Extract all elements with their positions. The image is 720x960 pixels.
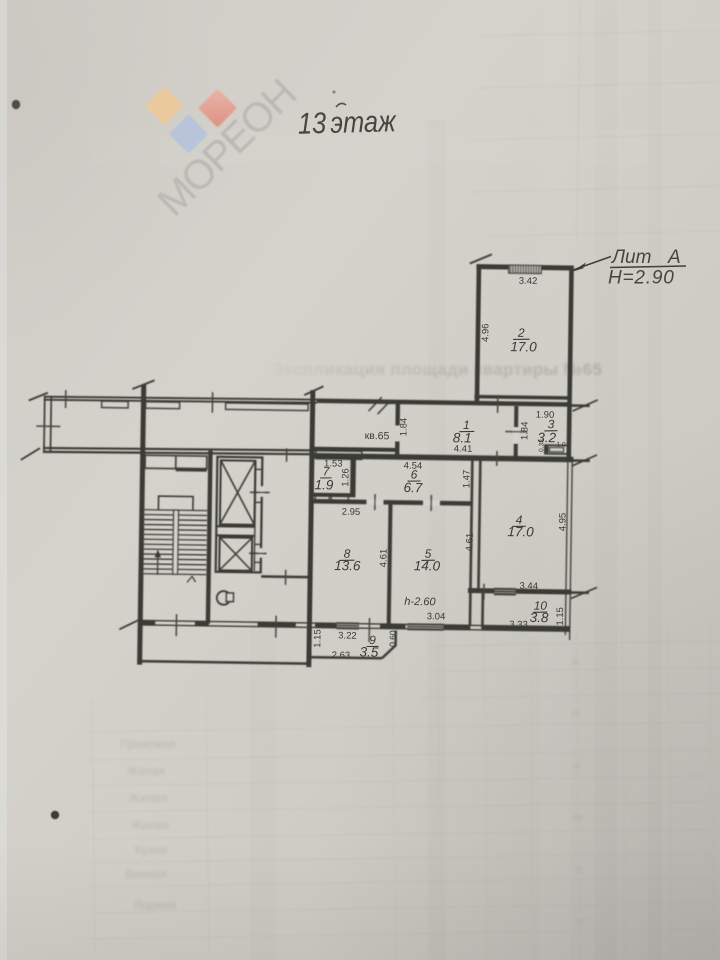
svg-text:ж: ж (572, 656, 578, 666)
svg-text:ж: ж (576, 864, 582, 874)
svg-text:1.0: 1.0 (557, 441, 567, 448)
svg-text:1.84: 1.84 (398, 418, 409, 437)
svg-text:1.84: 1.84 (519, 422, 530, 441)
svg-text:кв.65: кв.65 (365, 430, 390, 442)
svg-text:Кухня: Кухня (135, 843, 167, 857)
svg-text:кв: кв (574, 812, 583, 822)
svg-text:2: 2 (517, 326, 525, 340)
svg-text:Лит: Лит (610, 247, 651, 268)
svg-text:3.22: 3.22 (338, 630, 357, 641)
svg-text:4.96: 4.96 (480, 323, 491, 342)
svg-text:1.9: 1.9 (314, 477, 333, 492)
svg-text:h-2.60: h-2.60 (404, 596, 436, 608)
svg-text:6.7: 6.7 (403, 480, 422, 495)
svg-text:2.63: 2.63 (332, 650, 351, 661)
svg-text:13: 13 (297, 106, 327, 140)
svg-text:3.33: 3.33 (509, 619, 528, 630)
svg-text:3: 3 (548, 417, 555, 431)
svg-text:пл: пл (575, 916, 585, 926)
svg-text:Экспликация площади квартиры №: Экспликация площади квартиры №65 (272, 360, 602, 379)
svg-text:ж: ж (574, 760, 580, 770)
svg-text:Ванная: Ванная (125, 867, 166, 881)
svg-text:3.44: 3.44 (519, 581, 538, 592)
svg-text:17.0: 17.0 (510, 339, 537, 354)
svg-text:Прихожая: Прихожая (120, 737, 176, 751)
svg-text:Жилая: Жилая (129, 791, 167, 805)
svg-text:1.26: 1.26 (340, 468, 351, 487)
svg-text:1.47: 1.47 (461, 470, 472, 489)
svg-text:Лоджия: Лоджия (134, 898, 177, 912)
svg-text:3.04: 3.04 (427, 611, 446, 622)
svg-text:пл: пл (571, 708, 581, 718)
svg-text:этаж: этаж (330, 104, 398, 139)
svg-text:1.15: 1.15 (555, 607, 566, 626)
svg-text:1.15: 1.15 (312, 629, 323, 648)
svg-text:4.95: 4.95 (557, 513, 568, 532)
svg-text:3.2: 3.2 (537, 430, 556, 445)
svg-text:8.1: 8.1 (453, 430, 472, 445)
svg-text:А: А (667, 247, 681, 268)
svg-text:Н=2.90: Н=2.90 (608, 268, 675, 289)
svg-text:3.42: 3.42 (519, 276, 538, 287)
svg-text:4.61: 4.61 (464, 533, 475, 552)
svg-text:0.60: 0.60 (387, 630, 397, 647)
svg-text:2.95: 2.95 (342, 507, 361, 518)
svg-text:Жилая: Жилая (131, 818, 169, 832)
svg-text:4.61: 4.61 (378, 549, 389, 568)
svg-text:Жилая: Жилая (127, 764, 165, 778)
